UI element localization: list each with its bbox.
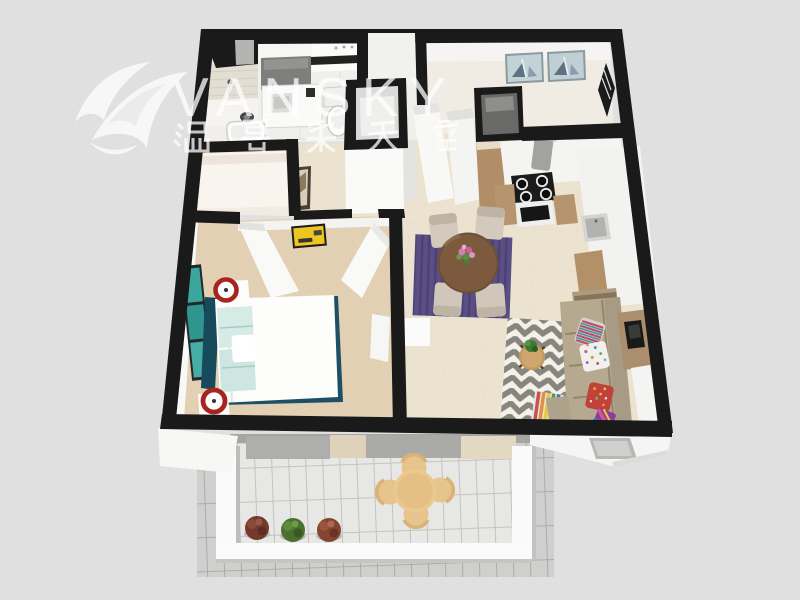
svg-text:VANSKY: VANSKY bbox=[172, 66, 457, 128]
